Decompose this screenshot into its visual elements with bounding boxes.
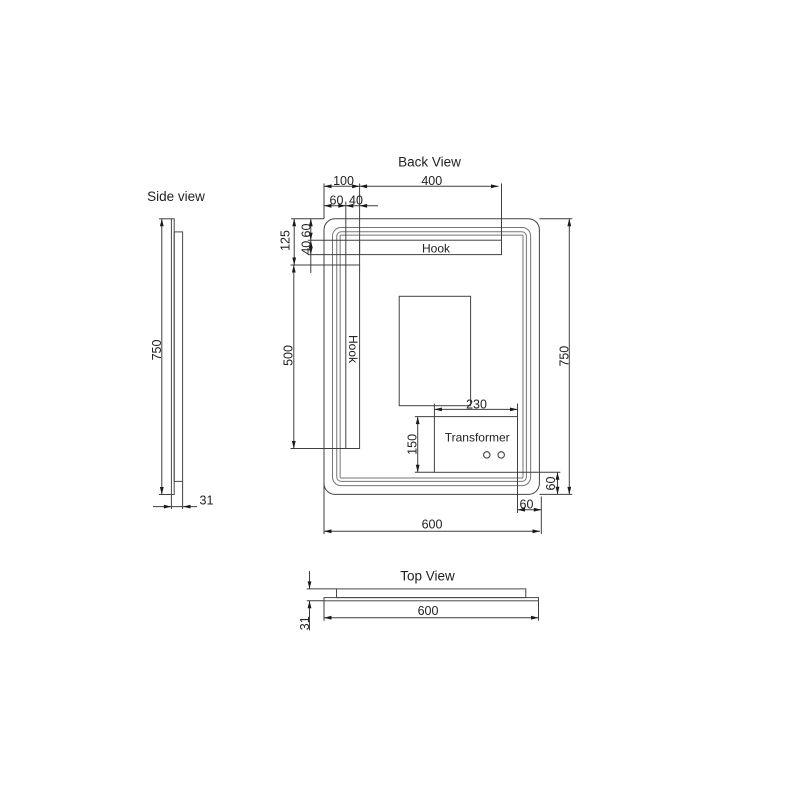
svg-text:60: 60 <box>544 477 558 491</box>
svg-text:125: 125 <box>279 230 293 251</box>
svg-text:600: 600 <box>422 517 443 531</box>
svg-text:230: 230 <box>466 397 487 411</box>
svg-text:60: 60 <box>520 498 534 512</box>
svg-text:31: 31 <box>298 616 312 630</box>
svg-text:600: 600 <box>418 604 439 618</box>
svg-text:60: 60 <box>299 224 313 238</box>
svg-text:400: 400 <box>421 174 442 188</box>
svg-text:750: 750 <box>558 346 572 367</box>
svg-text:Transformer: Transformer <box>445 431 510 445</box>
svg-text:100: 100 <box>333 174 354 188</box>
svg-text:Back View: Back View <box>398 155 461 170</box>
svg-text:31: 31 <box>200 493 214 507</box>
svg-text:60: 60 <box>330 194 344 208</box>
svg-text:Hook: Hook <box>346 335 360 364</box>
svg-text:150: 150 <box>405 434 419 455</box>
svg-text:Top View: Top View <box>400 568 455 583</box>
svg-text:500: 500 <box>281 345 295 366</box>
svg-text:40: 40 <box>349 194 363 208</box>
svg-text:Side view: Side view <box>147 189 205 204</box>
svg-text:750: 750 <box>150 340 164 361</box>
svg-text:40: 40 <box>299 241 313 255</box>
svg-text:Hook: Hook <box>422 241 451 255</box>
